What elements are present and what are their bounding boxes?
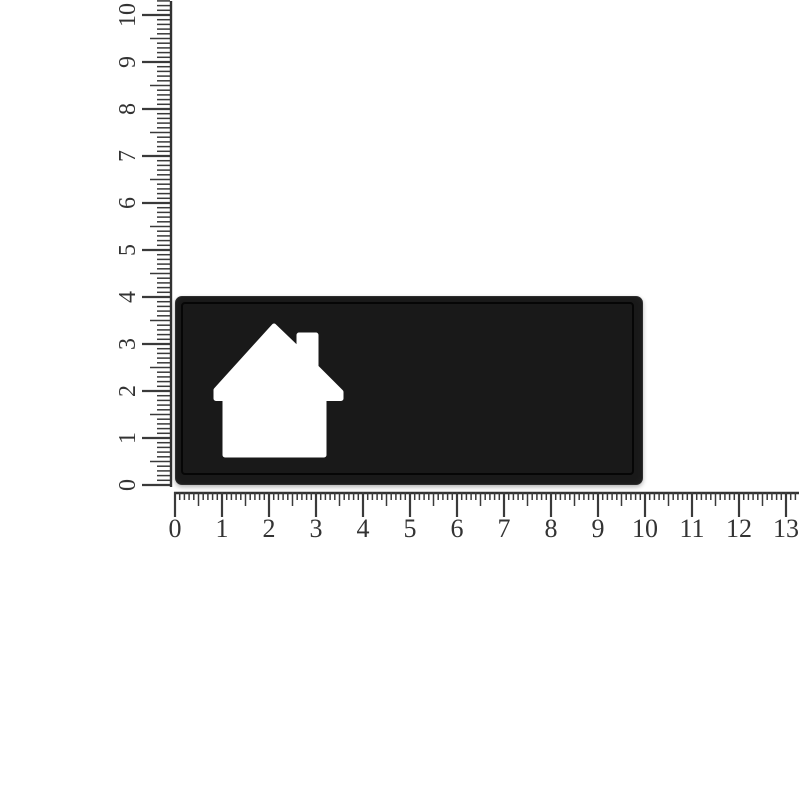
ruler-label: 11 bbox=[679, 514, 704, 543]
vertical-ruler: 012345678910 bbox=[115, 1, 171, 491]
ruler-label: 3 bbox=[310, 514, 323, 543]
ruler-label: 1 bbox=[216, 514, 229, 543]
ruler-label: 0 bbox=[169, 514, 182, 543]
ruler-label: 2 bbox=[263, 514, 276, 543]
ruler-label: 7 bbox=[115, 150, 141, 162]
ruler-label: 1 bbox=[115, 432, 141, 444]
horizontal-ruler: 012345678910111213 bbox=[169, 492, 800, 543]
ruler-label: 4 bbox=[357, 514, 370, 543]
ruler-label: 10 bbox=[115, 3, 141, 27]
ruler-label: 10 bbox=[632, 514, 658, 543]
ruler-label: 2 bbox=[115, 385, 141, 397]
ruler-label: 8 bbox=[115, 103, 141, 115]
black-plate bbox=[175, 296, 643, 485]
ruler-label: 13 bbox=[773, 514, 799, 543]
vertical-tick-marks bbox=[142, 1, 170, 485]
ruler-label: 4 bbox=[115, 291, 141, 303]
ruler-label: 0 bbox=[115, 479, 141, 491]
ruler-label: 12 bbox=[726, 514, 752, 543]
house-silhouette bbox=[216, 326, 341, 455]
measurement-diagram: 012345678910012345678910111213 bbox=[0, 0, 800, 800]
ruler-label: 5 bbox=[115, 244, 141, 256]
ruler-label: 5 bbox=[404, 514, 417, 543]
ruler-label: 9 bbox=[592, 514, 605, 543]
ruler-label: 7 bbox=[498, 514, 511, 543]
ruler-label: 6 bbox=[115, 197, 141, 209]
ruler-label: 6 bbox=[451, 514, 464, 543]
ruler-label: 3 bbox=[115, 338, 141, 350]
ruler-label: 8 bbox=[545, 514, 558, 543]
house-cutout bbox=[176, 297, 642, 484]
ruler-label: 9 bbox=[115, 56, 141, 68]
